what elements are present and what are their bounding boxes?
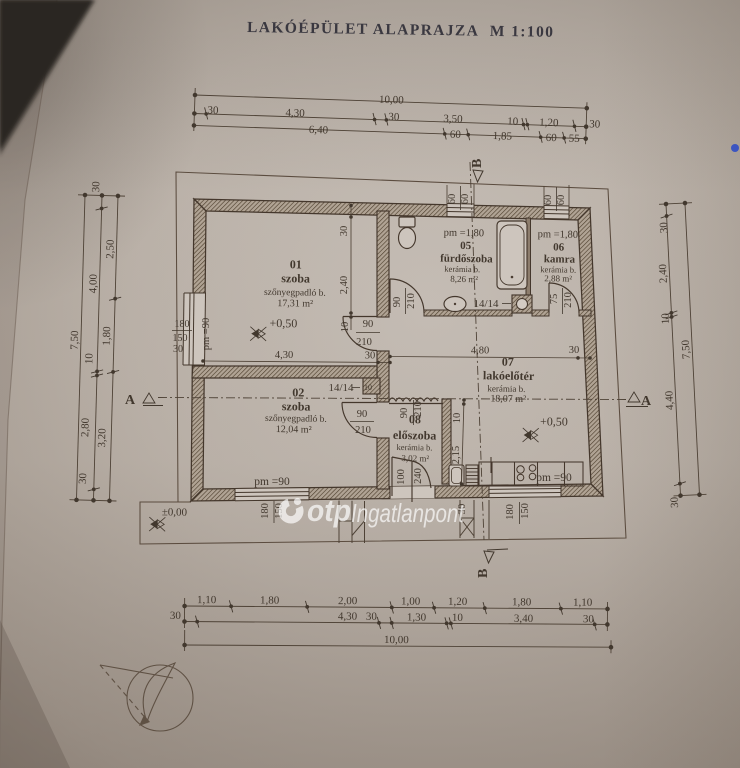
svg-text:1,80: 1,80 (512, 596, 532, 608)
svg-text:előszoba: előszoba (393, 428, 437, 443)
svg-text:10,00: 10,00 (384, 634, 409, 646)
svg-text:2,00: 2,00 (338, 595, 358, 607)
svg-text:3,50: 3,50 (443, 113, 463, 126)
svg-text:07: 07 (502, 355, 514, 369)
svg-text:06: 06 (553, 241, 565, 253)
svg-text:30: 30 (173, 344, 183, 355)
svg-text:60: 60 (447, 194, 458, 205)
svg-text:30: 30 (366, 611, 378, 623)
svg-text:60: 60 (556, 195, 567, 206)
svg-text:szőnyegpadló b.: szőnyegpadló b. (265, 414, 327, 425)
svg-text:60: 60 (543, 195, 554, 206)
svg-text:30: 30 (388, 111, 400, 123)
svg-text:kerámia b.: kerámia b. (396, 442, 432, 453)
svg-text:14/14: 14/14 (328, 382, 354, 394)
svg-text:180: 180 (260, 503, 271, 519)
svg-text:1,00: 1,00 (401, 596, 421, 608)
svg-text:7,50: 7,50 (69, 330, 82, 350)
svg-text:4,80: 4,80 (471, 346, 489, 357)
svg-text:1,85: 1,85 (493, 130, 513, 143)
svg-text:150: 150 (520, 503, 531, 519)
svg-text:14/14: 14/14 (473, 298, 499, 310)
svg-text:10: 10 (83, 353, 95, 365)
svg-text:pm =1,80: pm =1,80 (538, 229, 579, 241)
svg-text:B: B (470, 159, 485, 168)
svg-text:3,20: 3,20 (96, 428, 109, 448)
svg-text:90: 90 (399, 408, 410, 419)
svg-text:pm =1,80: pm =1,80 (444, 228, 485, 240)
svg-text:3,02 m²: 3,02 m² (401, 453, 429, 463)
svg-text:6,40: 6,40 (309, 124, 329, 137)
svg-text:+0,50: +0,50 (540, 414, 568, 428)
svg-text:30: 30 (583, 613, 595, 625)
svg-text:1,20: 1,20 (448, 596, 468, 608)
svg-text:Ingatlanpont: Ingatlanpont (351, 498, 465, 528)
svg-text:55: 55 (569, 133, 581, 145)
svg-text:8,26 m²: 8,26 m² (450, 274, 478, 284)
svg-text:2,15: 2,15 (451, 446, 462, 464)
svg-text:30: 30 (365, 351, 376, 362)
svg-text:4,30: 4,30 (338, 611, 358, 623)
svg-text:kerámia b.: kerámia b. (487, 383, 525, 394)
svg-text:szoba: szoba (281, 271, 310, 285)
svg-text:1,80: 1,80 (101, 326, 114, 346)
svg-text:3,40: 3,40 (514, 613, 534, 625)
svg-text:30: 30 (77, 472, 89, 484)
svg-text:10: 10 (340, 322, 351, 333)
svg-text:30: 30 (569, 345, 580, 356)
svg-text:±0,00: ±0,00 (162, 506, 188, 518)
svg-text:otp: otp (307, 493, 351, 528)
svg-text:10: 10 (452, 413, 463, 424)
svg-text:30: 30 (339, 226, 350, 237)
svg-text:210: 210 (356, 337, 372, 348)
svg-text:210: 210 (563, 292, 574, 308)
svg-text:2,40: 2,40 (339, 276, 350, 294)
svg-text:30: 30 (669, 496, 682, 508)
svg-text:150: 150 (173, 333, 188, 344)
svg-text:4,40: 4,40 (663, 390, 676, 410)
svg-text:60: 60 (546, 132, 558, 144)
svg-text:1,10: 1,10 (197, 594, 217, 606)
svg-text:10: 10 (452, 612, 464, 624)
svg-text:01: 01 (290, 257, 302, 271)
svg-text:B: B (476, 569, 491, 578)
svg-text:18,07 m²: 18,07 m² (490, 393, 526, 405)
svg-text:90: 90 (363, 319, 374, 330)
svg-text:60: 60 (460, 194, 471, 205)
svg-text:17,31 m²: 17,31 m² (277, 298, 313, 310)
svg-text:szoba: szoba (282, 399, 311, 413)
svg-text:2,88 m²: 2,88 m² (544, 273, 572, 283)
svg-text:2,50: 2,50 (104, 239, 117, 259)
svg-text:05: 05 (460, 240, 472, 252)
svg-text:4,30: 4,30 (275, 350, 293, 361)
svg-text:180: 180 (505, 504, 516, 520)
svg-text:pm =90: pm =90 (254, 476, 290, 488)
svg-text:+0,50: +0,50 (269, 316, 297, 330)
svg-text:210: 210 (355, 425, 371, 436)
svg-text:75: 75 (549, 294, 560, 305)
svg-text:210: 210 (406, 293, 417, 309)
svg-text:1,30: 1,30 (407, 612, 427, 624)
svg-text:30: 30 (170, 610, 182, 622)
svg-text:02: 02 (292, 385, 304, 399)
svg-text:pm =90: pm =90 (201, 318, 212, 350)
svg-text:60: 60 (450, 129, 462, 141)
svg-text:4,30: 4,30 (285, 107, 305, 120)
svg-text:szőnyegpadló b.: szőnyegpadló b. (264, 288, 326, 299)
svg-text:4,00: 4,00 (87, 273, 100, 293)
svg-text:10: 10 (659, 312, 672, 324)
svg-text:10,00: 10,00 (379, 94, 405, 107)
svg-text:240: 240 (413, 468, 424, 484)
svg-text:10: 10 (507, 116, 519, 128)
svg-text:2,80: 2,80 (79, 417, 92, 437)
svg-text:30: 30 (589, 118, 601, 130)
svg-text:10: 10 (364, 383, 372, 392)
svg-text:90: 90 (357, 409, 368, 420)
svg-text:pm =90: pm =90 (536, 472, 572, 484)
svg-text:30: 30 (207, 104, 219, 116)
svg-text:7,50: 7,50 (680, 339, 693, 359)
svg-text:12,04 m²: 12,04 m² (276, 424, 312, 436)
svg-text:lakóelőtér: lakóelőtér (483, 368, 535, 383)
svg-text:180: 180 (175, 319, 190, 330)
svg-text:30: 30 (658, 221, 671, 233)
svg-text:210: 210 (413, 401, 424, 417)
svg-text:1,10: 1,10 (573, 597, 593, 609)
svg-text:90: 90 (392, 297, 403, 308)
svg-text:100: 100 (396, 469, 407, 485)
svg-text:2,40: 2,40 (657, 263, 670, 283)
svg-text:1,80: 1,80 (260, 595, 280, 607)
svg-text:1,20: 1,20 (539, 117, 559, 130)
svg-text:A: A (125, 393, 136, 408)
svg-text:kerámia b.: kerámia b. (444, 264, 480, 275)
svg-text:30: 30 (90, 181, 102, 193)
